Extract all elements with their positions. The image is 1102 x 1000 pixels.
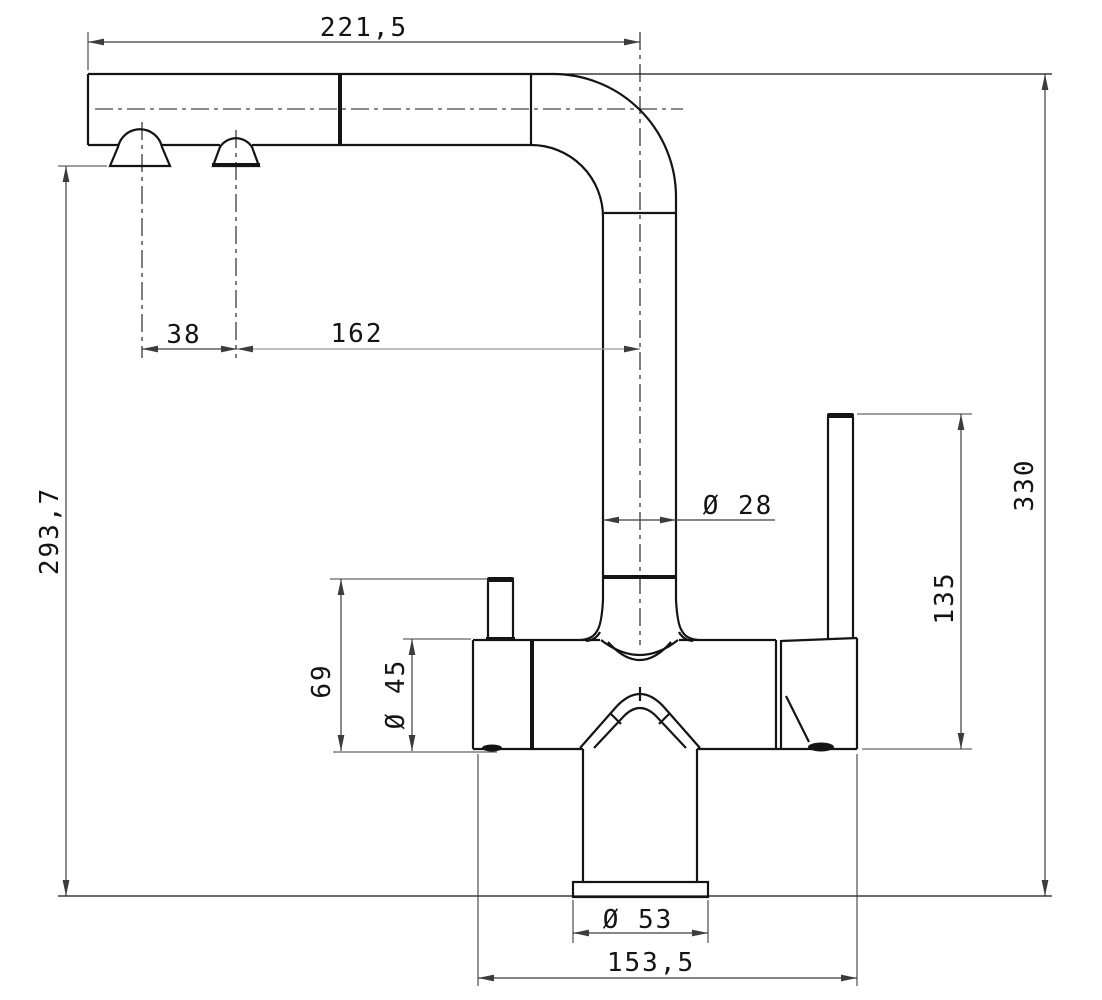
drawing-sheet: 221,5 38 162 293,7 Ø 28 69 Ø 45 135 330 …: [0, 0, 1102, 1000]
body-left-seal: [482, 745, 502, 752]
dim-label-spout-reach: 221,5: [320, 13, 408, 43]
dim-label-total-height: 330: [1010, 459, 1040, 512]
handle-base-seal: [808, 743, 834, 752]
outlet-nozzle-large: [110, 129, 170, 166]
handle-rod-sides: [828, 417, 853, 639]
dimension-labels: 221,5 38 162 293,7 Ø 28 69 Ø 45 135 330 …: [35, 13, 1040, 978]
faucet-technical-drawing: 221,5 38 162 293,7 Ø 28 69 Ø 45 135 330 …: [0, 0, 1102, 1000]
base-flange: [573, 882, 708, 897]
knob-sides: [488, 581, 513, 639]
handle-base-top: [781, 638, 857, 641]
dim-label-outlet-to-axis: 162: [331, 319, 384, 349]
dim-label-outlet-spacing: 38: [166, 320, 201, 350]
riser-flare-right: [676, 577, 698, 640]
body-arch-inner: [594, 708, 686, 748]
dim-label-handle-span: 135: [930, 572, 960, 625]
handle-rod-cap: [827, 413, 854, 418]
dim-label-knob-height: 69: [307, 663, 337, 698]
knob-top-cap: [487, 577, 514, 582]
riser-flare-left: [581, 577, 603, 640]
dim-label-pipe-diameter: Ø 28: [703, 491, 774, 521]
body-arch-outer: [580, 694, 700, 748]
faucet-outline: [58, 74, 1052, 897]
spout-inner-bend: [531, 145, 603, 577]
extension-lines: [58, 32, 972, 986]
body-arch-tick-left: [611, 714, 621, 724]
dimension-lines: [66, 42, 1045, 978]
body-arch-tick-right: [659, 714, 669, 724]
dim-label-flange-diameter: Ø 53: [603, 905, 674, 935]
dim-label-base-span: 153,5: [607, 948, 695, 978]
spout-outer-bend: [553, 74, 676, 577]
handle-base-diagonal: [786, 696, 809, 742]
dim-label-outlet-height: 293,7: [35, 487, 65, 575]
dim-label-body-diameter: Ø 45: [381, 659, 411, 730]
base-column-sides: [583, 749, 697, 882]
